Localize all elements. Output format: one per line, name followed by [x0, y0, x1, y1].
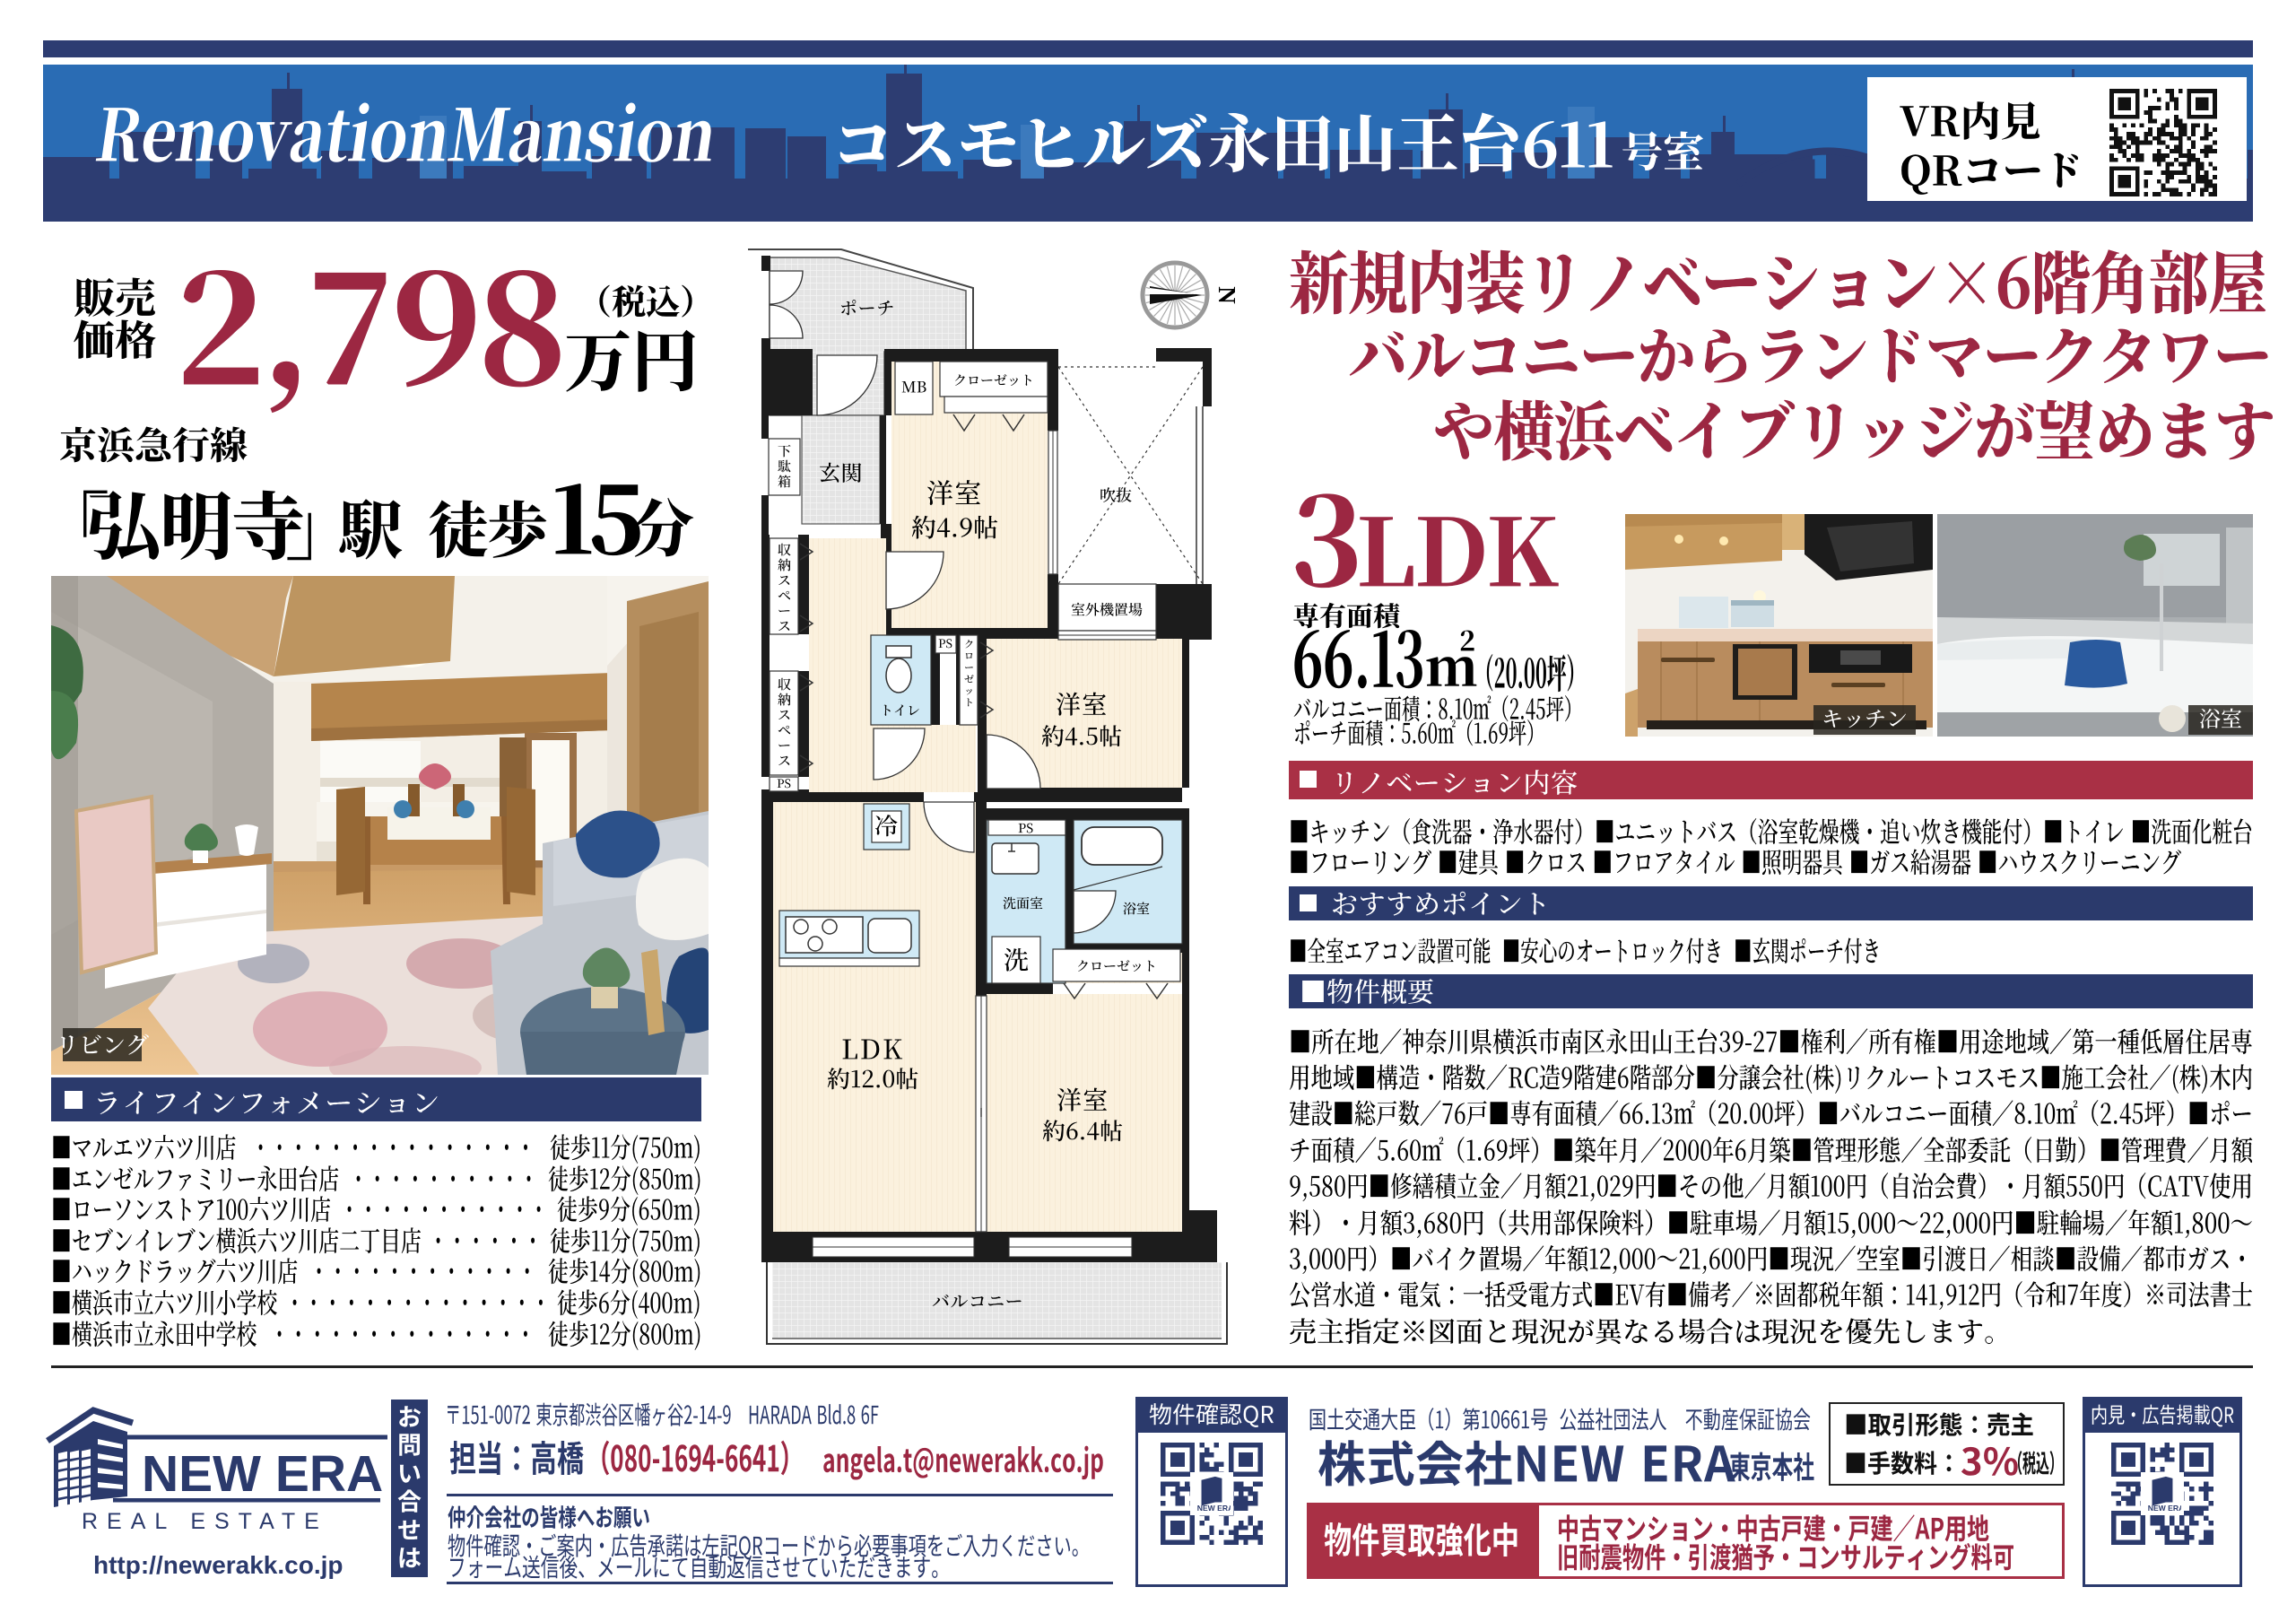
svg-text:NEW ERA: NEW ERA	[142, 1445, 383, 1503]
svg-text:NEW ERA: NEW ERA	[2148, 1504, 2181, 1513]
svg-text:REAL ESTATE: REAL ESTATE	[82, 1509, 328, 1534]
svg-text:N: N	[1213, 286, 1239, 304]
svg-text:http://newerakk.co.jp: http://newerakk.co.jp	[93, 1552, 344, 1579]
svg-text:NEW ERA: NEW ERA	[1197, 1504, 1231, 1513]
